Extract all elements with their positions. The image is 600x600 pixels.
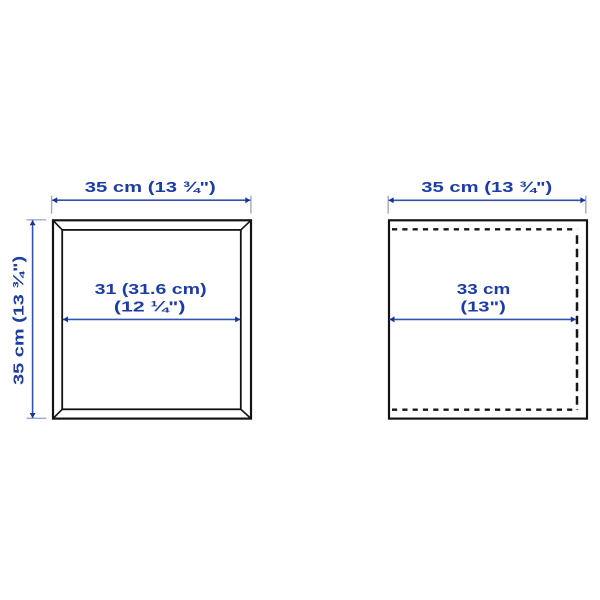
svg-text:35 cm (13 ¾"): 35 cm (13 ¾") (85, 179, 216, 196)
svg-text:33 cm: 33 cm (457, 281, 511, 298)
svg-text:35 cm (13 ¾"): 35 cm (13 ¾") (11, 256, 28, 385)
svg-text:(13"): (13") (460, 299, 506, 316)
svg-text:(12 ¼"): (12 ¼") (114, 299, 186, 316)
svg-text:35 cm (13 ¾"): 35 cm (13 ¾") (421, 179, 552, 196)
svg-text:31 (31.6 cm): 31 (31.6 cm) (95, 281, 207, 298)
